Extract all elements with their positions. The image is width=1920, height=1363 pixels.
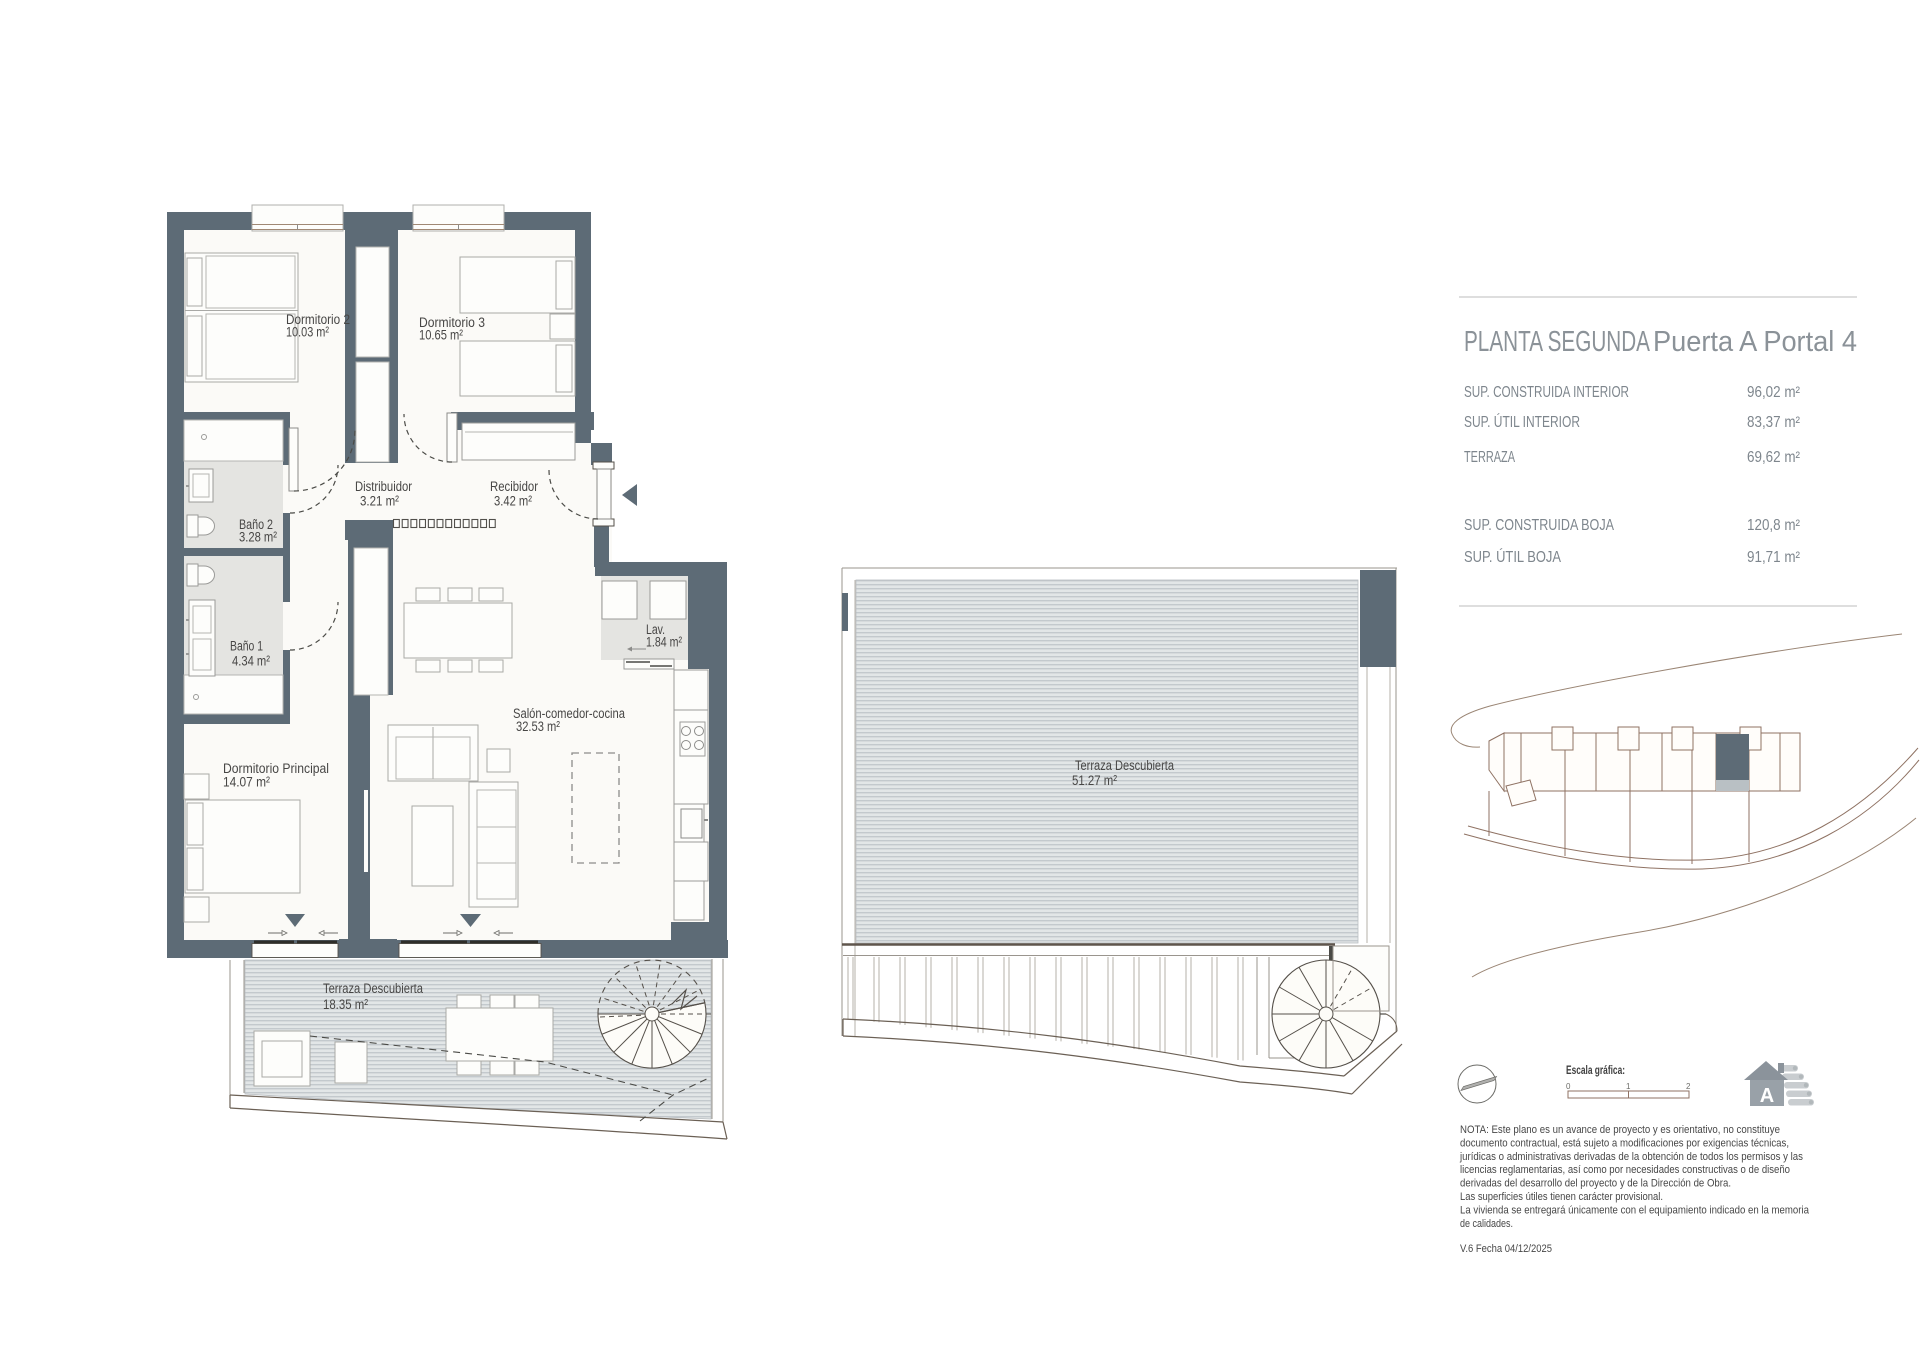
svg-text:2: 2 (1686, 1082, 1691, 1091)
svg-text:10.03 m²: 10.03 m² (286, 325, 329, 341)
svg-text:SUP. CONSTRUIDA INTERIOR: SUP. CONSTRUIDA INTERIOR (1464, 384, 1629, 401)
svg-text:83,37 m²: 83,37 m² (1747, 414, 1800, 431)
svg-text:3.21 m²: 3.21 m² (360, 494, 399, 510)
svg-text:Baño 1: Baño 1 (230, 639, 263, 655)
svg-text:SUP. ÚTIL INTERIOR: SUP. ÚTIL INTERIOR (1464, 414, 1580, 431)
svg-text:10.65 m²: 10.65 m² (419, 328, 463, 344)
svg-text:A: A (1760, 1085, 1774, 1107)
svg-text:51.27 m²: 51.27 m² (1072, 773, 1117, 789)
svg-text:Terraza Descubierta: Terraza Descubierta (323, 981, 423, 997)
svg-text:NOTA: Este plano es un avance: NOTA: Este plano es un avance de proyect… (1460, 1124, 1780, 1136)
svg-text:Puerta A Portal 4: Puerta A Portal 4 (1653, 326, 1857, 358)
svg-text:Las superficies útiles tienen: Las superficies útiles tienen carácter p… (1460, 1191, 1663, 1203)
svg-text:120,8 m²: 120,8 m² (1747, 517, 1800, 534)
svg-text:V.6 Fecha 04/12/2025: V.6 Fecha 04/12/2025 (1460, 1243, 1552, 1255)
svg-text:96,02 m²: 96,02 m² (1747, 384, 1800, 401)
svg-text:derivadas del desarrollo del p: derivadas del desarrollo del proyecto y … (1460, 1178, 1731, 1190)
svg-text:Escala gráfica:: Escala gráfica: (1566, 1063, 1625, 1077)
svg-text:PLANTA SEGUNDA: PLANTA SEGUNDA (1464, 326, 1650, 358)
svg-text:1: 1 (1626, 1082, 1631, 1091)
svg-text:TERRAZA: TERRAZA (1464, 449, 1515, 466)
svg-text:1.84 m²: 1.84 m² (646, 635, 682, 651)
svg-text:14.07 m²: 14.07 m² (223, 775, 270, 791)
svg-text:0: 0 (1566, 1082, 1571, 1091)
svg-text:18.35 m²: 18.35 m² (323, 997, 368, 1013)
svg-text:licencias reglamentarias, así: licencias reglamentarias, así como por n… (1460, 1164, 1790, 1176)
svg-text:91,71 m²: 91,71 m² (1747, 549, 1800, 566)
svg-text:3.28 m²: 3.28 m² (239, 530, 277, 546)
svg-text:4.34 m²: 4.34 m² (232, 654, 270, 670)
svg-text:3.42 m²: 3.42 m² (494, 494, 532, 510)
svg-text:32.53 m²: 32.53 m² (516, 719, 560, 735)
svg-text:de calidades.: de calidades. (1460, 1218, 1513, 1230)
svg-text:69,62 m²: 69,62 m² (1747, 449, 1800, 466)
svg-text:SUP. CONSTRUIDA BOJA: SUP. CONSTRUIDA BOJA (1464, 517, 1615, 534)
svg-text:documento contractual, está su: documento contractual, está sujeto a mod… (1460, 1137, 1789, 1149)
svg-text:jurídicas o administrativas de: jurídicas o administrativas derivadas de… (1459, 1151, 1803, 1163)
svg-text:La vivienda se entregará única: La vivienda se entregará únicamente con … (1460, 1204, 1810, 1216)
svg-text:SUP. ÚTIL BOJA: SUP. ÚTIL BOJA (1464, 549, 1562, 566)
svg-text:Terraza Descubierta: Terraza Descubierta (1075, 758, 1174, 774)
